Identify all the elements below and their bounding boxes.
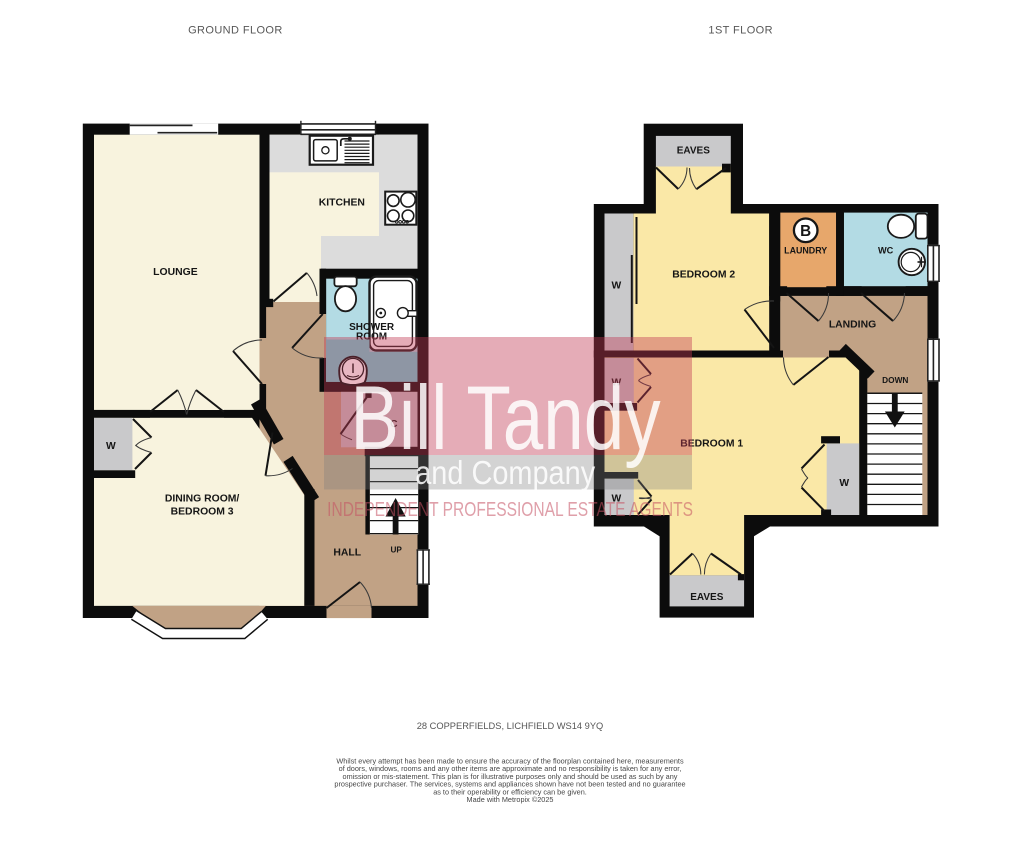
svg-text:28 COPPERFIELDS, LICHFIELD WS1: 28 COPPERFIELDS, LICHFIELD WS14 9YQ <box>417 721 604 731</box>
svg-text:INDEPENDENT PROFESSIONAL ESTAT: INDEPENDENT PROFESSIONAL ESTATE AGENTS <box>327 498 693 520</box>
svg-text:KITCHEN: KITCHEN <box>319 198 365 209</box>
svg-text:HALL: HALL <box>333 547 361 558</box>
svg-text:W: W <box>839 478 849 489</box>
svg-text:B: B <box>800 223 811 240</box>
svg-text:LAUNDRY: LAUNDRY <box>784 246 827 256</box>
svg-text:LOUNGE: LOUNGE <box>153 267 198 278</box>
svg-text:UP: UP <box>391 546 403 555</box>
svg-text:W: W <box>106 441 116 452</box>
svg-text:EAVES: EAVES <box>677 146 710 157</box>
svg-text:BEDROOM 2: BEDROOM 2 <box>672 269 735 280</box>
svg-text:GROUND FLOOR: GROUND FLOOR <box>188 24 283 36</box>
svg-text:EAVES: EAVES <box>690 592 723 603</box>
svg-text:W: W <box>612 281 622 292</box>
svg-text:1ST FLOOR: 1ST FLOOR <box>708 24 773 36</box>
svg-text:DINING ROOM/: DINING ROOM/ <box>165 494 240 505</box>
svg-text:DOWN: DOWN <box>882 375 908 385</box>
svg-text:LANDING: LANDING <box>829 320 876 331</box>
svg-text:WC: WC <box>878 246 894 256</box>
svg-text:Made with Metropix ©2025: Made with Metropix ©2025 <box>467 795 554 804</box>
svg-text:and Company: and Company <box>415 454 595 491</box>
svg-text:BEDROOM 3: BEDROOM 3 <box>171 506 234 517</box>
